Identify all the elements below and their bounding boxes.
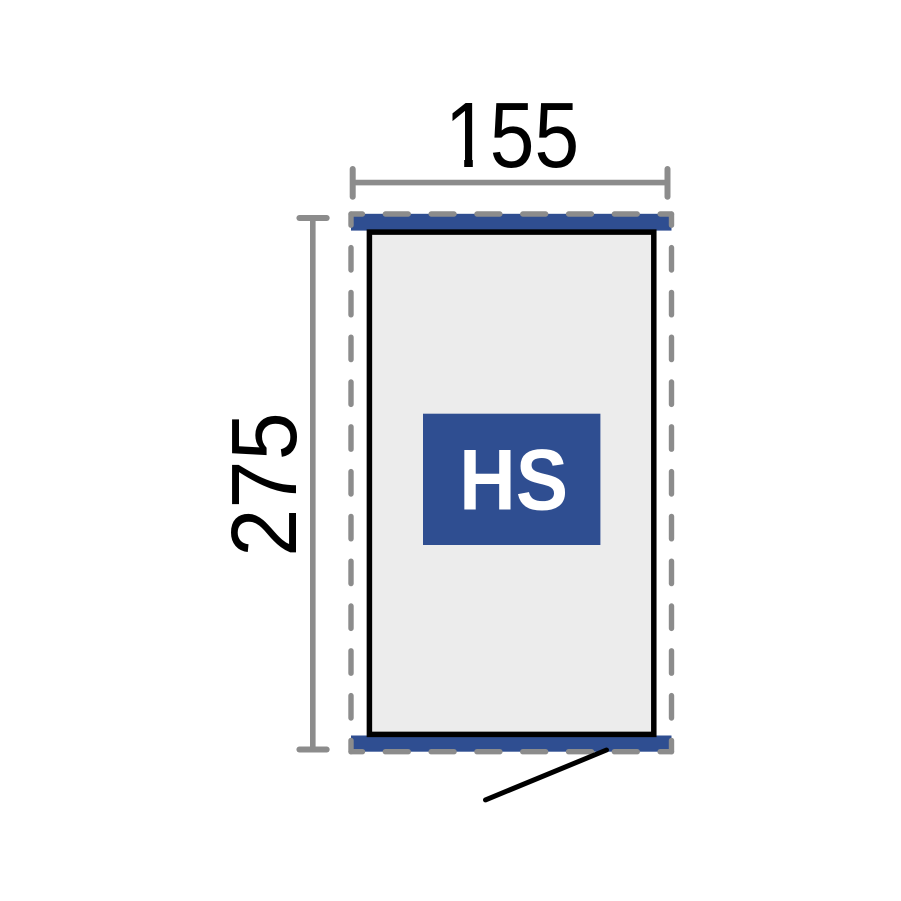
svg-text:HS: HS [459, 433, 568, 529]
svg-text:155: 155 [445, 83, 580, 187]
svg-text:275: 275 [212, 412, 316, 557]
